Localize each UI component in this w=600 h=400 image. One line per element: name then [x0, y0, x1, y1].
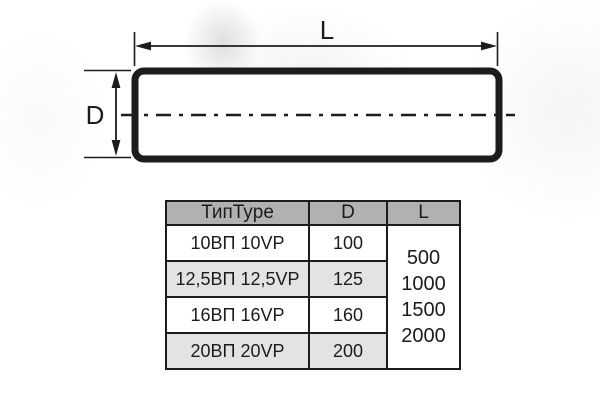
length-option: 1000: [388, 271, 459, 297]
cell-type: 10ВП 10VP: [166, 225, 309, 261]
diameter-label: D: [86, 100, 105, 130]
cell-d: 200: [309, 333, 387, 369]
header-l: L: [387, 201, 460, 225]
duct-dimension-diagram: L D: [0, 0, 600, 195]
length-option: 1500: [388, 297, 459, 323]
cell-l-merged: 500 1000 1500 2000: [387, 225, 460, 369]
cell-d: 160: [309, 297, 387, 333]
cell-type: 12,5ВП 12,5VP: [166, 261, 309, 297]
header-type: ТипType: [166, 201, 309, 225]
length-option: 500: [388, 245, 459, 271]
length-option: 2000: [388, 323, 459, 349]
spec-table: ТипType D L 10ВП 10VP 100 500 1000 1500 …: [165, 200, 461, 370]
table-row: 10ВП 10VP 100 500 1000 1500 2000: [166, 225, 460, 261]
spec-table-header-row: ТипType D L: [166, 201, 460, 225]
length-arrow-right-icon: [481, 42, 497, 51]
length-label: L: [320, 15, 334, 45]
cell-d: 125: [309, 261, 387, 297]
diameter-arrow-up-icon: [112, 72, 121, 88]
length-arrow-left-icon: [135, 42, 151, 51]
diameter-arrow-down-icon: [112, 140, 121, 156]
cell-type: 20ВП 20VP: [166, 333, 309, 369]
cell-type: 16ВП 16VP: [166, 297, 309, 333]
cell-d: 100: [309, 225, 387, 261]
length-options: 500 1000 1500 2000: [388, 245, 459, 349]
header-d: D: [309, 201, 387, 225]
duct-spec-sheet: L D ТипType D L 10ВП 10VP 100 500: [0, 0, 600, 400]
